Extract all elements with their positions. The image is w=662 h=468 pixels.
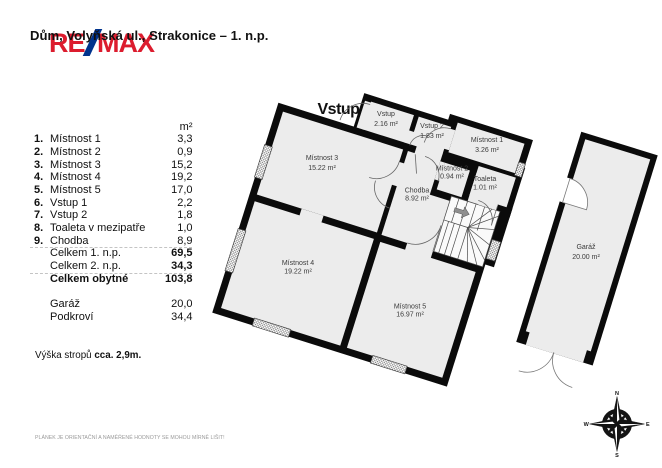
svg-text:Vstup 2: Vstup 2 (420, 123, 444, 130)
svg-text:Toaleta: Toaleta (474, 176, 497, 183)
svg-text:1.83 m²: 1.83 m² (420, 133, 444, 140)
svg-text:Místnost 1: Místnost 1 (471, 137, 503, 144)
svg-text:8.92 m²: 8.92 m² (405, 196, 429, 203)
svg-text:Vstup: Vstup (377, 111, 395, 118)
svg-text:1.01 m²: 1.01 m² (473, 185, 497, 192)
svg-text:N: N (615, 391, 619, 397)
svg-text:3.26 m²: 3.26 m² (475, 147, 499, 154)
svg-text:16.97 m²: 16.97 m² (396, 312, 424, 319)
svg-text:15.22 m²: 15.22 m² (308, 165, 336, 172)
svg-text:Garáž: Garáž (576, 244, 596, 251)
svg-text:2.16 m²: 2.16 m² (374, 121, 398, 128)
svg-text:20.00 m²: 20.00 m² (572, 254, 600, 261)
svg-text:0.94 m²: 0.94 m² (440, 174, 464, 181)
svg-text:Chodba: Chodba (405, 188, 430, 195)
svg-text:E: E (646, 422, 650, 428)
svg-text:S: S (615, 453, 619, 459)
svg-text:Místnost 5: Místnost 5 (394, 304, 426, 311)
svg-text:19.22 m²: 19.22 m² (284, 269, 312, 276)
svg-text:Místnost 4: Místnost 4 (282, 260, 314, 267)
svg-text:Místnost 2: Místnost 2 (436, 166, 468, 173)
svg-text:Místnost 3: Místnost 3 (306, 155, 338, 162)
svg-text:W: W (584, 422, 590, 428)
